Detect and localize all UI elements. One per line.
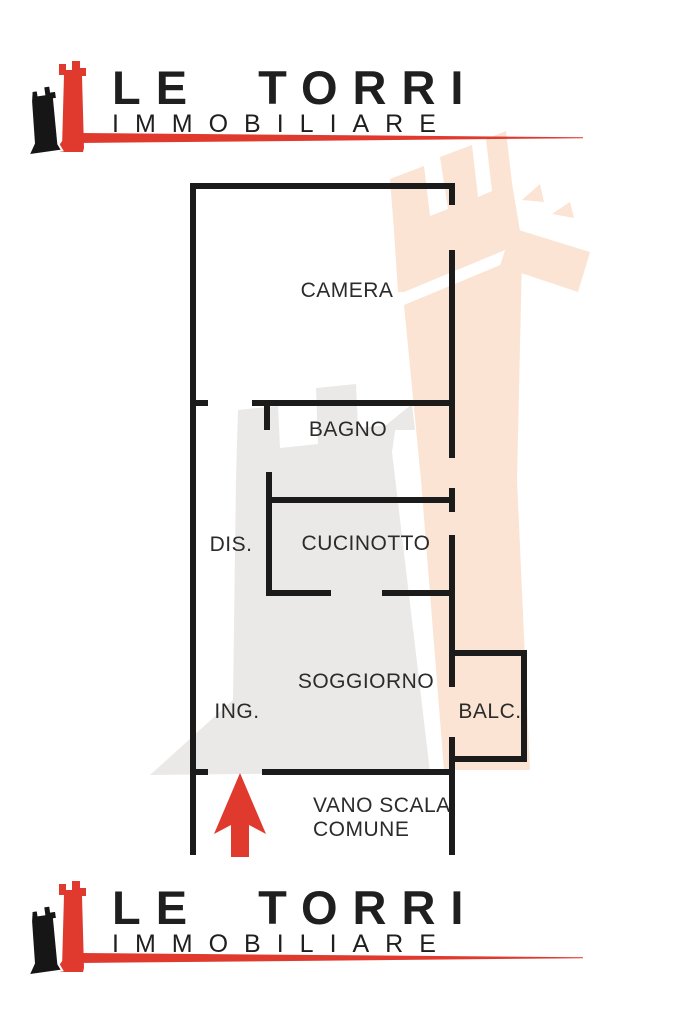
towers-logo-icon — [26, 878, 94, 980]
brand-name: LE TORRI — [112, 64, 478, 111]
brand-subtitle: IMMOBILIARE — [112, 932, 478, 957]
floorplan: CAMERA BAGNO DIS. CUCINOTTO SOGGIORNO IN… — [0, 0, 682, 1024]
brand-footer: LE TORRI IMMOBILIARE — [0, 875, 682, 1000]
red-tower-icon — [59, 881, 86, 972]
room-label-cucinotto: CUCINOTTO — [302, 532, 431, 556]
red-tower-icon — [59, 61, 86, 152]
entrance-arrow-icon — [214, 773, 266, 857]
brand-name: LE TORRI — [112, 884, 478, 931]
room-label-vano-scala-line2: COMUNE — [313, 818, 451, 842]
room-label-bagno: BAGNO — [309, 418, 387, 442]
room-label-camera: CAMERA — [301, 279, 394, 303]
room-label-vano-scala-line1: VANO SCALA — [313, 794, 451, 818]
room-label-soggiorno: SOGGIORNO — [298, 670, 434, 694]
floorplan-drawing — [0, 0, 682, 1024]
brand-subtitle: IMMOBILIARE — [112, 112, 478, 137]
room-label-balc: BALC. — [458, 700, 521, 724]
room-label-ing: ING. — [214, 700, 259, 724]
floorplan-page: LE TORRI IMMOBILIARE — [0, 0, 682, 1024]
black-tower-icon — [26, 85, 64, 155]
black-tower-icon — [26, 905, 64, 975]
room-label-vano-scala: VANO SCALA COMUNE — [313, 794, 451, 842]
towers-logo-icon — [26, 58, 94, 160]
room-label-dis: DIS. — [210, 533, 253, 557]
brand-text: LE TORRI IMMOBILIARE — [112, 64, 478, 137]
brand-text: LE TORRI IMMOBILIARE — [112, 884, 478, 957]
